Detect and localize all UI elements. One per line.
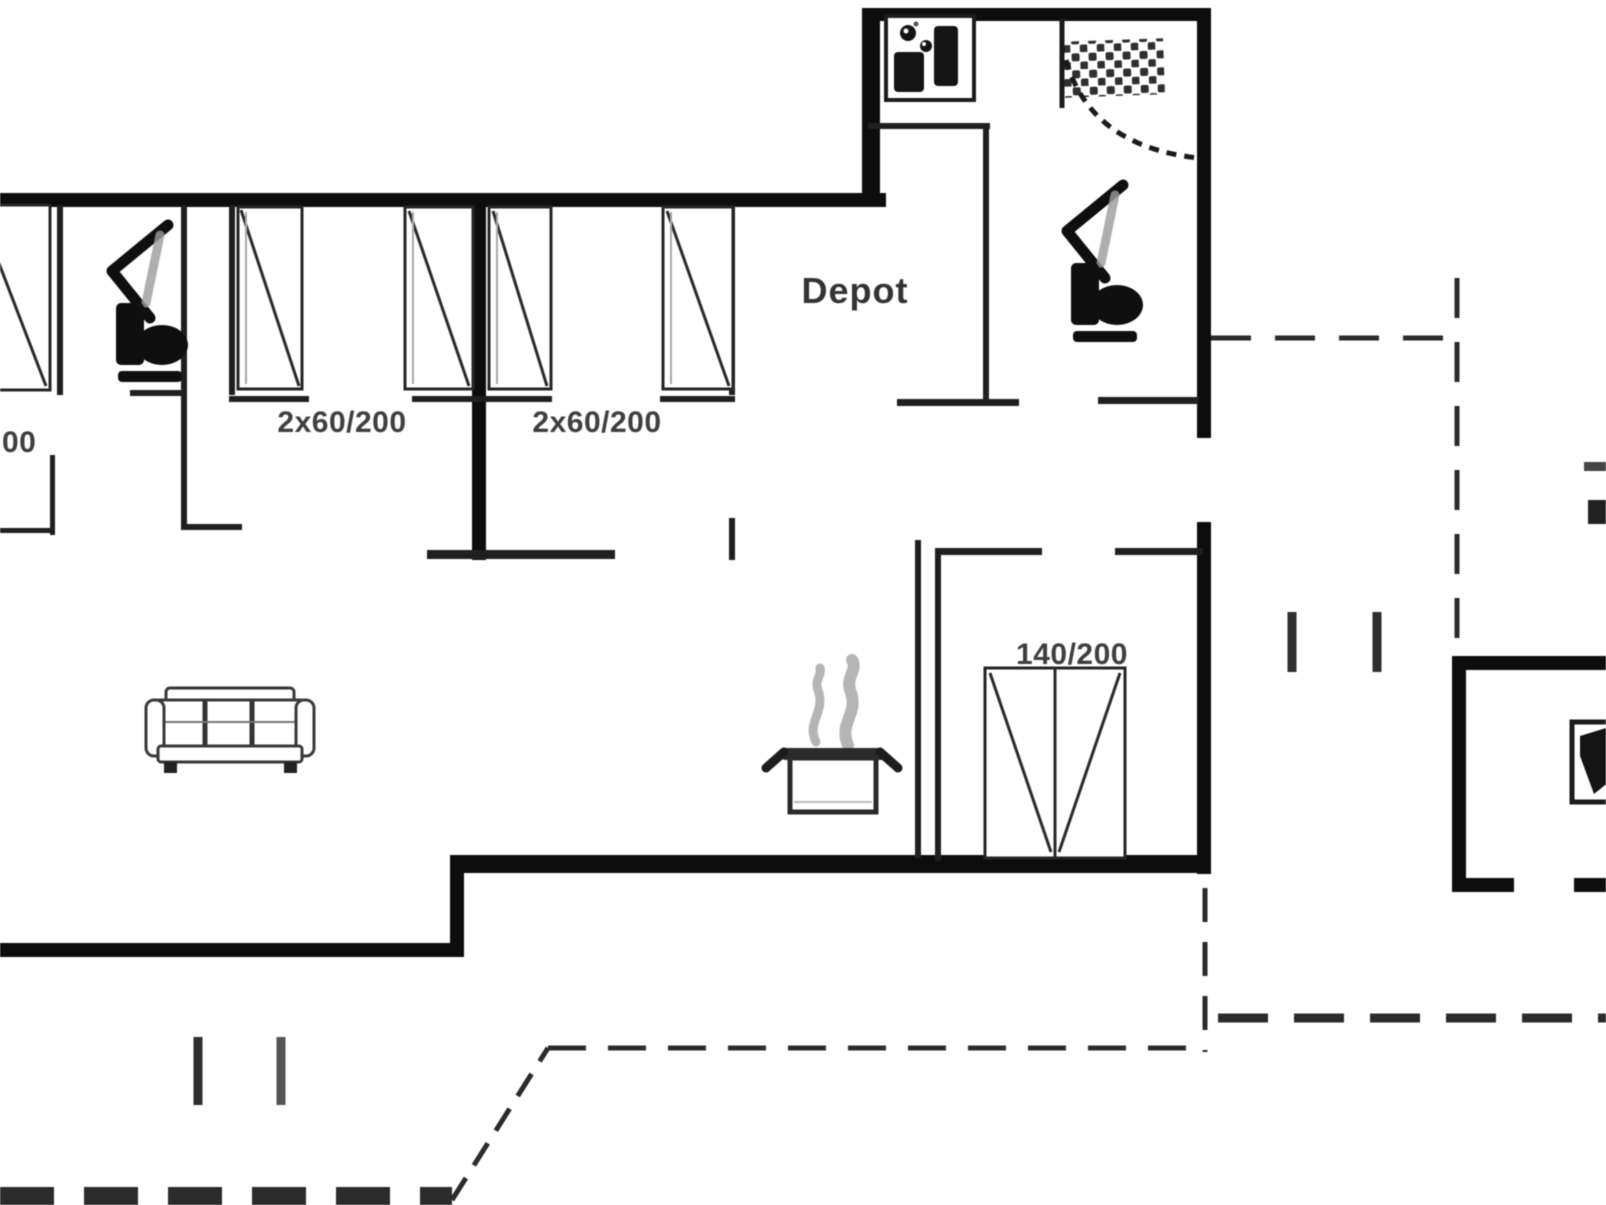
- wall-top-strip: [0, 193, 886, 207]
- annex-walls: [1452, 462, 1606, 892]
- cooking-pot-icon: [766, 660, 898, 812]
- bed-size-label-a: 2x60/200: [277, 406, 406, 439]
- wall-bottom-step: [450, 855, 464, 957]
- double-bed-size-label: 140/200: [1016, 638, 1128, 671]
- steam-icon: [813, 660, 854, 745]
- annex-wall-bottom-right: [1574, 878, 1606, 892]
- single-bed-icon: [405, 207, 473, 389]
- washing-machine-icon: [886, 16, 974, 100]
- bed-size-label-b: 2x60/200: [532, 406, 661, 439]
- wall-right-upper: [1197, 8, 1211, 438]
- shower-icon: [1063, 38, 1165, 97]
- toilet-icon: [1067, 185, 1143, 342]
- wall-bath-left: [862, 8, 880, 200]
- floor-plan-svg: Depot 2x60/200 2x60/200 140/200 00: [0, 0, 1606, 1205]
- double-bed-icon: [985, 668, 1125, 858]
- annex-wall-left: [1452, 656, 1466, 892]
- annex-wall-top: [1452, 656, 1606, 670]
- single-bed-icon: [489, 207, 551, 389]
- stove-icon: [1572, 722, 1606, 802]
- single-beds: [0, 205, 733, 390]
- wall-bottom-left: [0, 943, 464, 957]
- sofa-icon: [146, 688, 314, 773]
- edge-partial-mark: [1584, 462, 1606, 471]
- toilet-icon: [112, 225, 188, 382]
- depot-room-label: Depot: [802, 270, 909, 311]
- single-bed-icon: [238, 207, 302, 389]
- wall-right-lower: [1197, 522, 1211, 874]
- bathroom-2-fixtures: [886, 16, 1198, 342]
- bathroom-1-fixtures: [112, 225, 188, 382]
- floor-plan-page: Depot 2x60/200 2x60/200 140/200 00: [0, 0, 1606, 1205]
- edge-partial-block: [1588, 500, 1606, 524]
- single-bed-icon: [663, 207, 733, 389]
- left-edge-partial-label: 00: [2, 426, 36, 459]
- single-bed-icon: [0, 205, 50, 390]
- annex-wall-bottom-left: [1452, 878, 1514, 892]
